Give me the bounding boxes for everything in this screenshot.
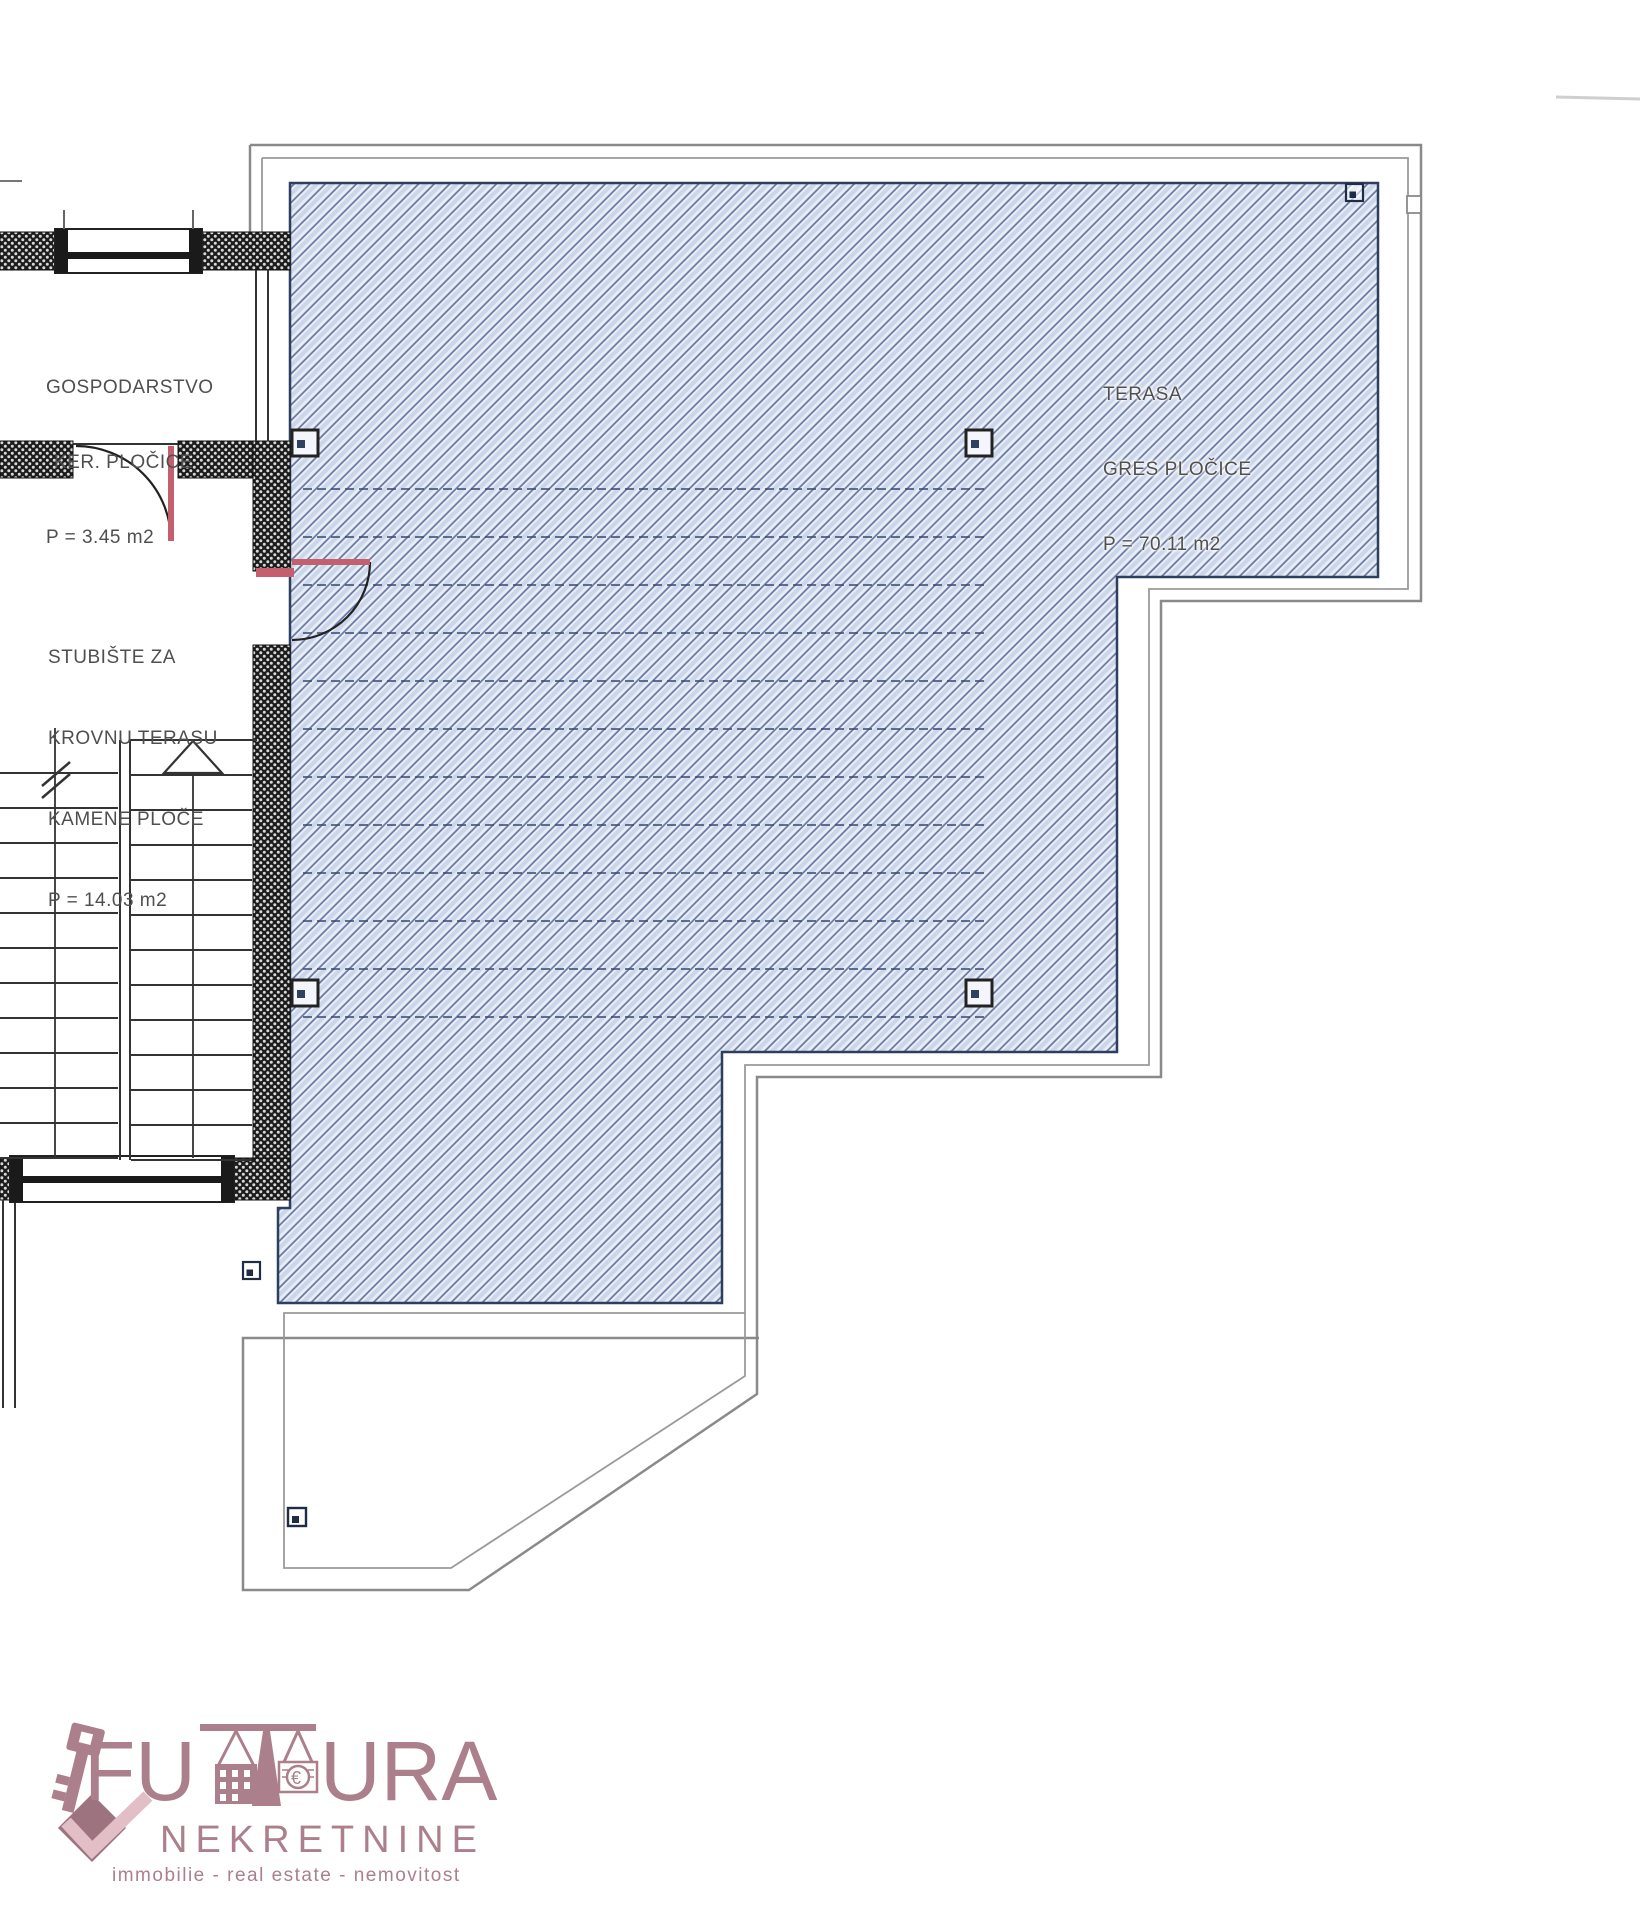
scan-artifact: [1556, 97, 1640, 99]
drain-marker-icon: [1346, 184, 1363, 201]
room-area: P = 14.03 m2: [48, 887, 218, 914]
logo-subtitle: NEKRETNINE: [160, 1819, 485, 1861]
room-name-2: KROVNU TERASU: [48, 725, 218, 752]
drain-marker-icon: [243, 1262, 260, 1279]
wall-top-left: [0, 232, 62, 270]
room-area: P = 70.11 m2: [1103, 532, 1252, 557]
logo-tagline: immobilie - real estate - nemovitost: [112, 1865, 461, 1886]
border-tick: [1407, 196, 1421, 213]
room-label-stubiste: STUBIŠTE ZA KROVNU TERASU KAMENE PLOČE P…: [48, 590, 218, 941]
door-threshold: [256, 568, 294, 577]
room-area: P = 3.45 m2: [46, 525, 214, 550]
scale-icon: €: [200, 1724, 317, 1806]
room-floor-type: GRES PLOČICE: [1103, 457, 1252, 482]
euro-coin-icon: €: [279, 1762, 317, 1792]
room-name: GOSPODARSTVO: [46, 375, 214, 400]
room-floor-type: KER. PLOČICE: [46, 450, 214, 475]
floor-plan-page: FU € URA NEKRETNINE immobilie - real est: [0, 0, 1643, 1920]
wall-vertical-upper: [253, 441, 290, 571]
wall-vertical-lower: [253, 645, 290, 1160]
brand-text-right: URA: [320, 1724, 497, 1818]
brand-text-left: FU: [84, 1724, 196, 1818]
building-icon: [215, 1764, 257, 1804]
room-name: STUBIŠTE ZA: [48, 644, 218, 671]
futura-logo: FU € URA NEKRETNINE immobilie - real est: [49, 1722, 497, 1886]
room-name: TERASA: [1103, 382, 1252, 407]
window-bottom: [10, 1156, 234, 1202]
window-top: [55, 210, 202, 273]
room-label-terasa: TERASA GRES PLOČICE P = 70.11 m2: [1103, 332, 1252, 582]
drain-marker-icon: [288, 1508, 306, 1526]
wall-top-right: [188, 232, 290, 270]
room-label-gospodarstvo: GOSPODARSTVO KER. PLOČICE P = 3.45 m2: [46, 325, 214, 575]
room-floor-type: KAMENE PLOČE: [48, 806, 218, 833]
wall-bottom-right: [228, 1158, 290, 1200]
euro-symbol: €: [291, 1768, 301, 1788]
floor-plan-drawing: FU € URA NEKRETNINE immobilie - real est: [0, 0, 1643, 1920]
